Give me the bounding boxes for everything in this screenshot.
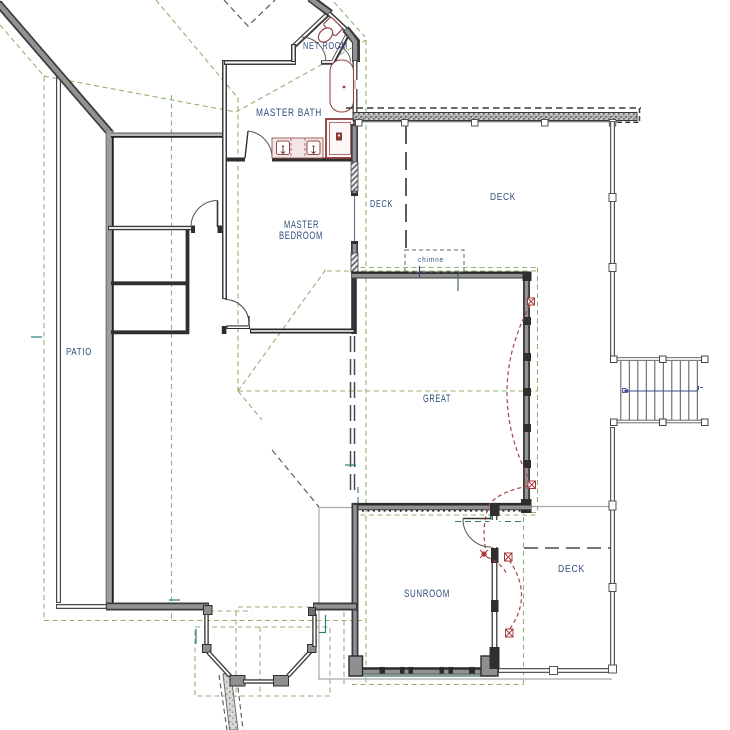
svg-text:DECK: DECK [490,191,516,203]
svg-text:BEDROOM: BEDROOM [279,230,323,242]
svg-text:DECK: DECK [558,563,585,575]
svg-text:chimne: chimne [418,257,444,264]
svg-text:GREAT: GREAT [423,393,451,405]
svg-text:MASTER BATH: MASTER BATH [256,107,322,119]
svg-text:NET ROOM: NET ROOM [303,40,348,52]
svg-text:PATIO: PATIO [66,346,92,358]
svg-text:SUNROOM: SUNROOM [404,588,450,600]
svg-text:DECK: DECK [370,198,393,210]
